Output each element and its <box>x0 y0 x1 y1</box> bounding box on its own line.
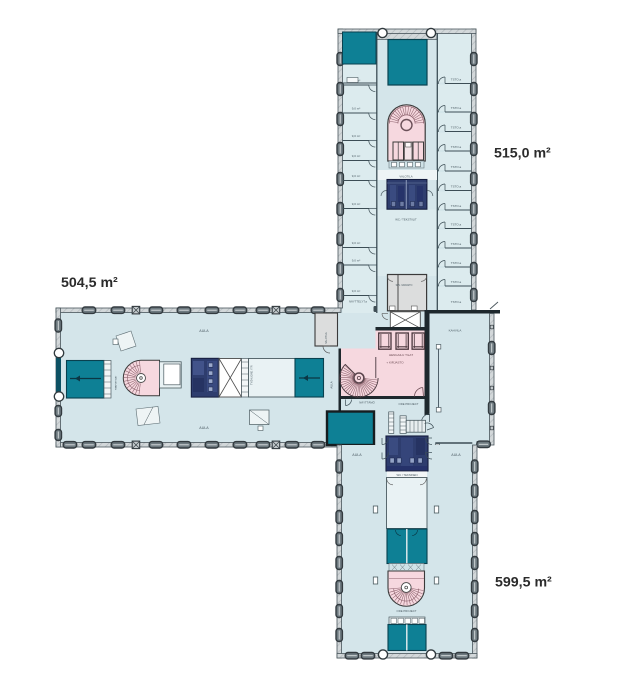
svg-text:TSTO.a: TSTO.a <box>451 261 462 265</box>
svg-text:SIIV. VARASTO: SIIV. VARASTO <box>396 284 413 287</box>
svg-text:TSTO.a: TSTO.a <box>451 242 462 246</box>
svg-text:WC / TEKNINEN: WC / TEKNINEN <box>396 473 417 477</box>
svg-text:9,0 m²: 9,0 m² <box>352 174 361 178</box>
svg-text:HENGAILU TILAT: HENGAILU TILAT <box>389 353 413 357</box>
svg-text:TSTO.a: TSTO.a <box>451 165 462 169</box>
svg-text:WC / TEKSTIILIT: WC / TEKSTIILIT <box>395 218 417 222</box>
svg-text:9,0 m²: 9,0 m² <box>352 259 361 263</box>
svg-text:TSTO.a: TSTO.a <box>451 145 462 149</box>
svg-text:TSTO.a: TSTO.a <box>451 184 462 188</box>
svg-text:TSTO.a: TSTO.a <box>451 106 462 110</box>
svg-text:AULA: AULA <box>352 453 362 457</box>
svg-text:TSTO.a: TSTO.a <box>451 280 462 284</box>
svg-text:515,0 m²: 515,0 m² <box>494 146 551 162</box>
svg-text:9,0 m²: 9,0 m² <box>352 154 361 158</box>
svg-text:TSTO.a: TSTO.a <box>451 300 462 304</box>
svg-text:ODE PROJECT: ODE PROJECT <box>397 609 417 613</box>
svg-text:TSTO.a: TSTO.a <box>451 204 462 208</box>
svg-text:VALOTILA: VALOTILA <box>325 332 328 344</box>
svg-text:+ KIRJASTO: + KIRJASTO <box>386 361 404 365</box>
svg-text:ODE PROJECT: ODE PROJECT <box>399 402 419 406</box>
svg-text:599,5 m²: 599,5 m² <box>495 575 552 591</box>
svg-text:9,0 m²: 9,0 m² <box>352 202 361 206</box>
svg-text:AULA: AULA <box>451 453 461 457</box>
svg-text:AULA: AULA <box>199 329 209 333</box>
svg-text:TSTO.a: TSTO.a <box>451 77 462 81</box>
svg-text:9,0 m²: 9,0 m² <box>352 289 361 293</box>
svg-text:9,0 m²: 9,0 m² <box>352 107 361 111</box>
svg-text:PÄÄPORTAAT: PÄÄPORTAAT <box>115 375 118 390</box>
svg-text:TSTO.a: TSTO.a <box>451 125 462 129</box>
svg-text:TSTO.a: TSTO.a <box>451 222 462 226</box>
svg-text:9,0 m²: 9,0 m² <box>352 134 361 138</box>
svg-text:NÄYTTELYT.a: NÄYTTELYT.a <box>349 300 367 304</box>
svg-text:AULA: AULA <box>330 381 334 388</box>
svg-text:9,0 m²: 9,0 m² <box>352 241 361 245</box>
svg-text:TYÖHUONE / TR: TYÖHUONE / TR <box>251 365 254 385</box>
svg-text:VALOTILA: VALOTILA <box>399 175 412 179</box>
svg-text:KAHVILA: KAHVILA <box>449 329 462 333</box>
svg-text:NÄYTTÄMÖ: NÄYTTÄMÖ <box>359 401 375 405</box>
svg-text:504,5 m²: 504,5 m² <box>61 275 118 291</box>
svg-text:AULA: AULA <box>199 426 209 430</box>
